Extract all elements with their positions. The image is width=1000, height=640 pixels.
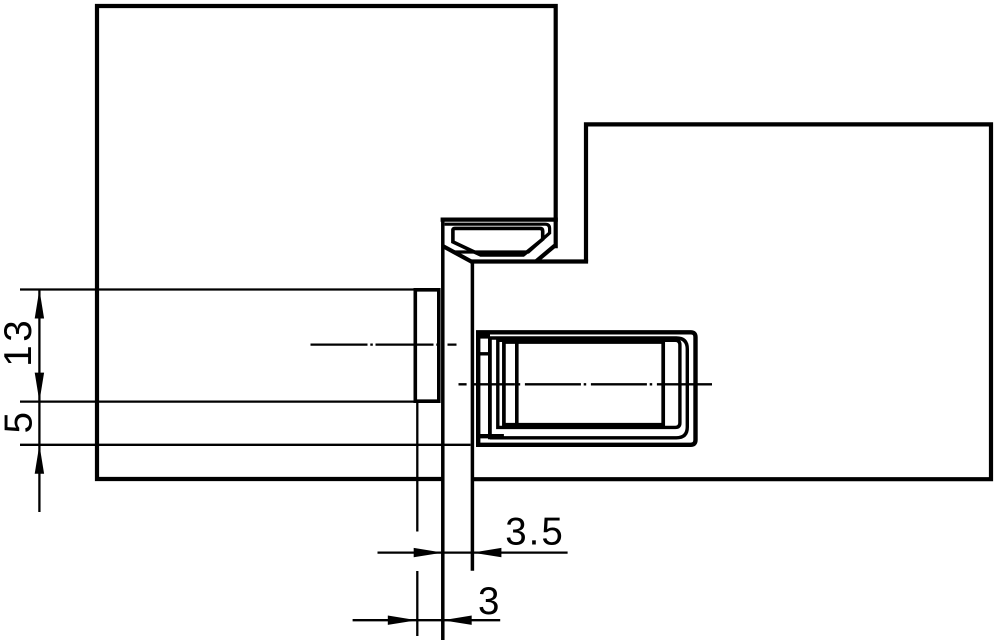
svg-text:5: 5 xyxy=(0,412,40,433)
svg-text:13: 13 xyxy=(0,317,40,367)
svg-text:3: 3 xyxy=(478,580,499,623)
svg-text:3.5: 3.5 xyxy=(505,510,565,553)
